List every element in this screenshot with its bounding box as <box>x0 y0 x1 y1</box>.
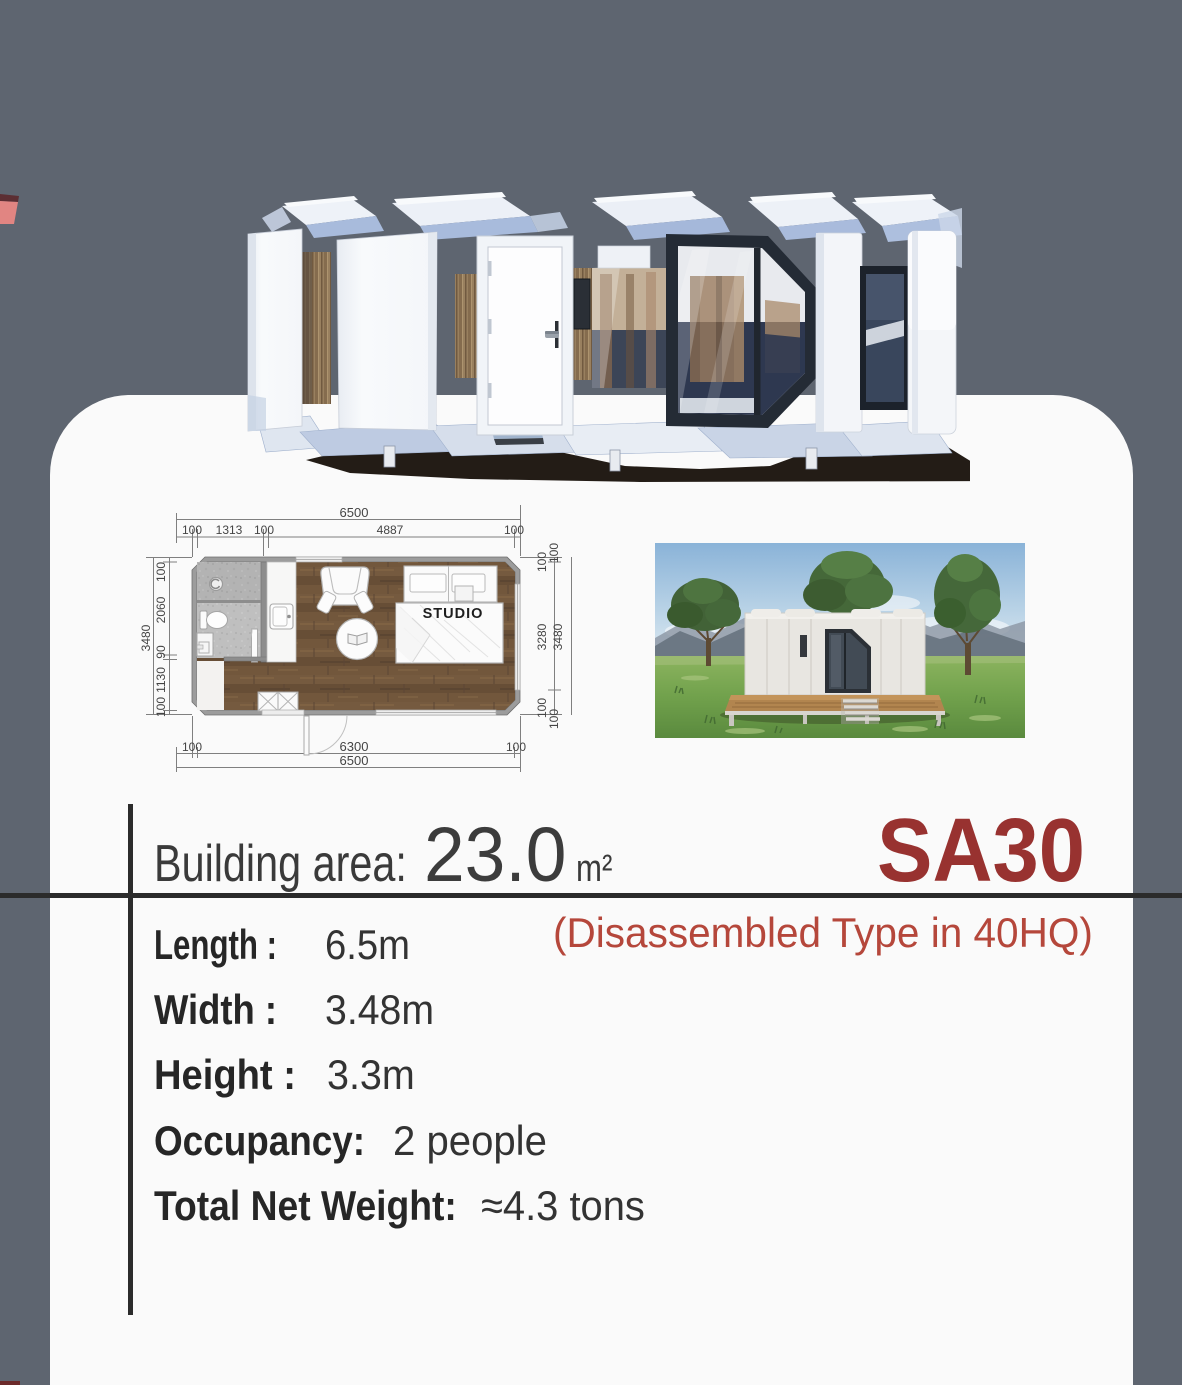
svg-text:100: 100 <box>154 697 168 717</box>
svg-text:100: 100 <box>154 562 168 582</box>
svg-text:3480: 3480 <box>139 624 153 651</box>
svg-text:2060: 2060 <box>154 596 168 623</box>
svg-text:6500: 6500 <box>340 753 369 768</box>
svg-text:3280: 3280 <box>535 623 549 650</box>
svg-text:1313: 1313 <box>216 523 243 537</box>
svg-text:3480: 3480 <box>551 623 565 650</box>
svg-text:90: 90 <box>154 645 168 659</box>
svg-text:100: 100 <box>547 709 561 729</box>
svg-text:100: 100 <box>504 523 524 537</box>
svg-text:1130: 1130 <box>154 667 168 693</box>
svg-text:6300: 6300 <box>340 739 369 754</box>
svg-text:100: 100 <box>547 543 561 563</box>
svg-text:6500: 6500 <box>340 505 369 520</box>
svg-text:100: 100 <box>506 740 526 754</box>
svg-text:100: 100 <box>182 523 202 537</box>
svg-text:100: 100 <box>254 523 274 537</box>
svg-text:4887: 4887 <box>377 523 404 537</box>
svg-text:STUDIO: STUDIO <box>423 606 484 622</box>
svg-text:100: 100 <box>182 740 202 754</box>
